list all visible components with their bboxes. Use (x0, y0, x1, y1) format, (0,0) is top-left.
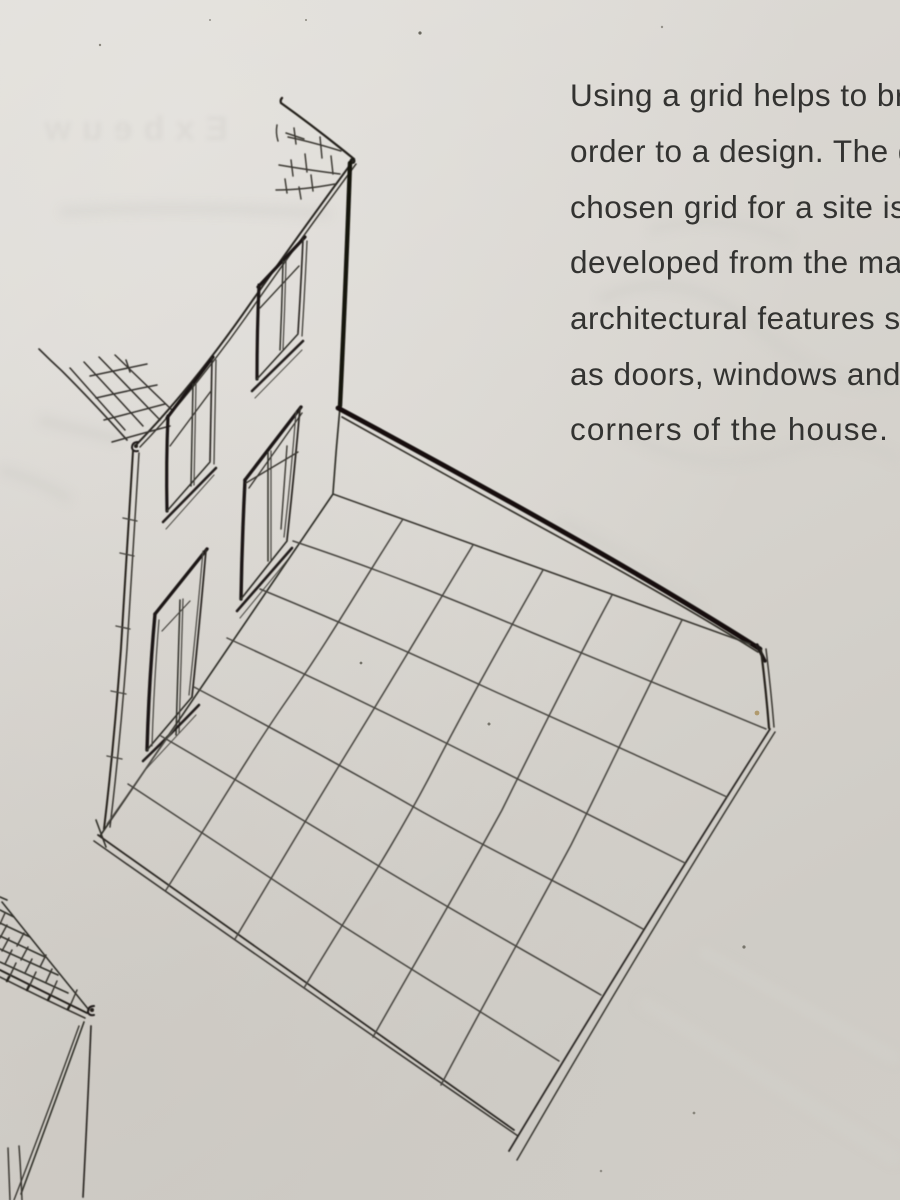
svg-text:Exbeuw: Exbeuw (34, 110, 228, 148)
